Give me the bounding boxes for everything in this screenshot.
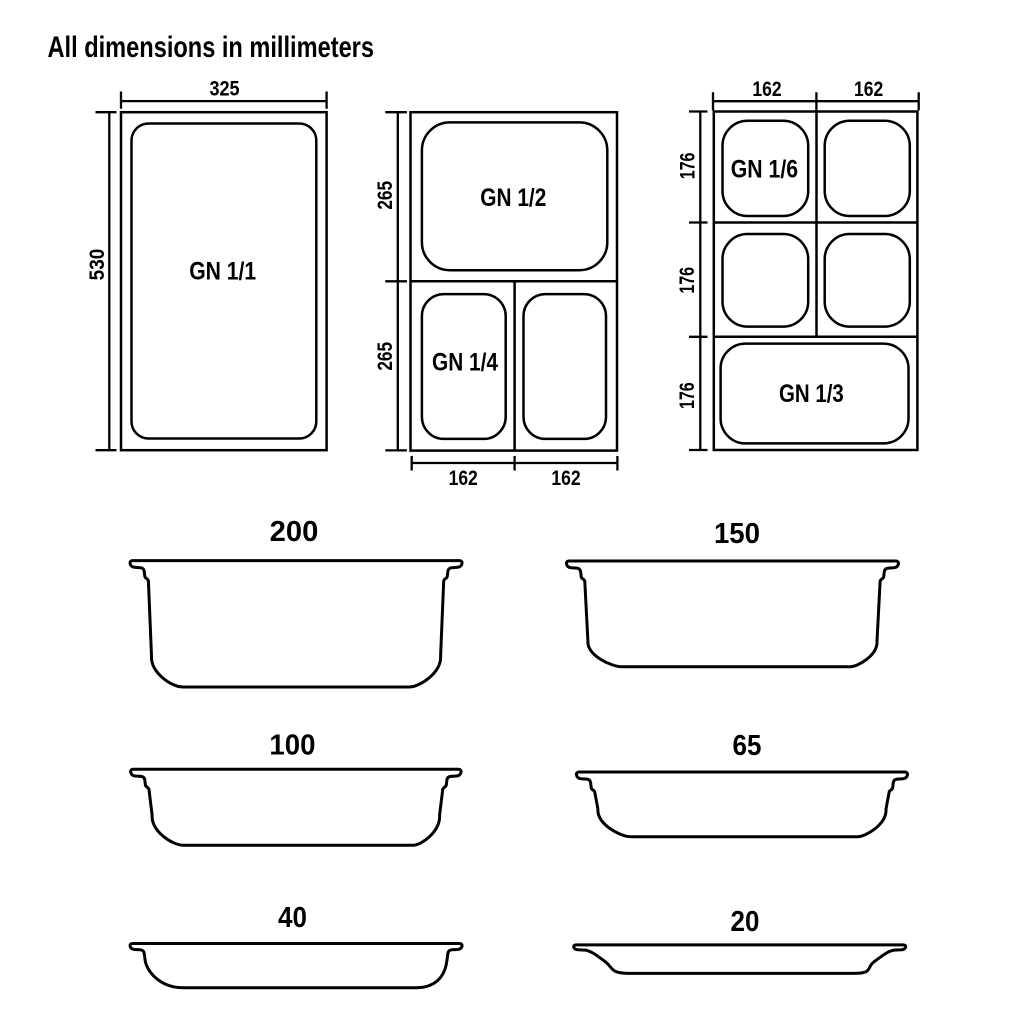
svg-text:265: 265 — [374, 342, 397, 371]
svg-text:176: 176 — [677, 153, 700, 180]
svg-text:GN 1/1: GN 1/1 — [189, 257, 256, 285]
svg-text:150: 150 — [714, 518, 760, 550]
svg-text:325: 325 — [209, 78, 239, 101]
svg-text:162: 162 — [551, 467, 580, 490]
svg-text:265: 265 — [374, 181, 397, 210]
svg-text:GN 1/4: GN 1/4 — [432, 348, 498, 376]
svg-text:162: 162 — [752, 78, 781, 101]
svg-text:65: 65 — [733, 730, 762, 762]
svg-text:GN 1/3: GN 1/3 — [779, 380, 844, 408]
svg-text:GN 1/6: GN 1/6 — [731, 155, 798, 183]
svg-text:162: 162 — [854, 78, 883, 101]
svg-text:40: 40 — [278, 902, 307, 934]
svg-text:20: 20 — [731, 906, 760, 938]
svg-text:All dimensions in millimeters: All dimensions in millimeters — [48, 32, 375, 64]
svg-text:GN 1/2: GN 1/2 — [480, 184, 546, 212]
svg-text:200: 200 — [270, 516, 319, 548]
svg-text:162: 162 — [449, 467, 478, 490]
svg-text:176: 176 — [676, 382, 699, 409]
svg-text:176: 176 — [676, 267, 699, 294]
svg-text:100: 100 — [269, 730, 315, 762]
svg-text:530: 530 — [86, 249, 109, 281]
